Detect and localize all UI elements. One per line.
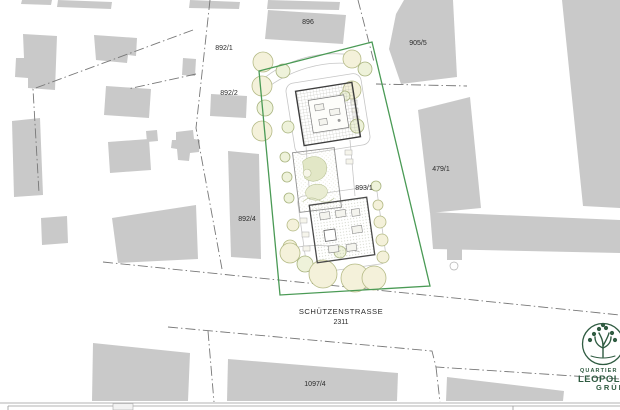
parcel-label-896: 896 [302,19,314,26]
parcel-line [196,0,222,269]
title-block-tab [113,404,133,410]
building [21,0,52,5]
tree-symbol [343,50,361,68]
tree-symbol [282,121,294,133]
parcel-line [128,74,196,89]
parcel-label-892-2: 892/2 [220,90,238,97]
new-building-south [309,197,375,263]
tree-symbol [280,152,290,162]
building [57,0,112,9]
building-1097-4 [227,359,398,401]
parcel-label-479-1: 479/1 [432,166,450,173]
logo: QUARTIER LEOPOLD GRÜN [578,323,620,392]
building [267,0,340,10]
parcel-label-1097-4: 1097/4 [304,381,326,388]
building [171,130,200,161]
street-number: 2311 [333,319,348,326]
building [446,377,564,401]
tree-symbol [373,200,383,210]
building [92,343,190,401]
building [182,58,196,76]
building-892-4 [228,151,261,259]
building [41,216,68,245]
tree-symbol [253,52,273,72]
building-right-slab [562,0,620,208]
logo-tree-icon [588,323,617,358]
building [15,34,57,90]
building [94,35,137,63]
parcel-label-893-1: 893/1 [355,185,373,192]
tree-symbol [309,260,337,288]
tree-symbol [284,193,294,203]
building-annex [447,249,462,260]
tree-symbol [282,172,292,182]
building [112,205,198,263]
tree-symbol [358,62,372,76]
parcel-line [376,84,467,86]
tree-symbol [287,219,299,231]
parcel-label-892-4: 892/4 [238,216,256,223]
parcel-line [358,0,374,62]
tree-symbol [376,234,388,246]
building [104,86,151,118]
parcel-line [208,331,214,402]
building-479-1-bar [430,212,620,253]
site-plan: 896 892/1 892/2 905/5 479/1 893/1 892/4 … [0,0,620,410]
building [189,0,240,9]
new-building-north [296,82,361,145]
building-896 [265,10,346,44]
parcel-label-905-5: 905/5 [409,40,427,47]
tree-symbol [377,251,389,263]
tree-symbol [374,216,386,228]
parcel-label-892-1: 892/1 [215,45,233,52]
tree-symbol [252,76,272,96]
building [146,130,158,142]
street-name: SCHÜTZENSTRASSE [299,307,383,316]
building-479-1-wing [418,97,481,213]
parcel-line [436,367,440,402]
site-plan-drawing: 896 892/1 892/2 905/5 479/1 893/1 892/4 … [0,0,620,410]
title-block [0,403,620,410]
building [210,94,247,118]
building-detail [450,262,458,270]
logo-text-gruen: GRÜN [596,383,620,392]
street-label: SCHÜTZENSTRASSE 2311 [299,307,383,326]
tree-symbol [257,100,273,116]
tree-symbol [252,121,272,141]
tree-symbol [280,243,300,263]
tree-symbol [362,266,386,290]
building [108,139,151,173]
